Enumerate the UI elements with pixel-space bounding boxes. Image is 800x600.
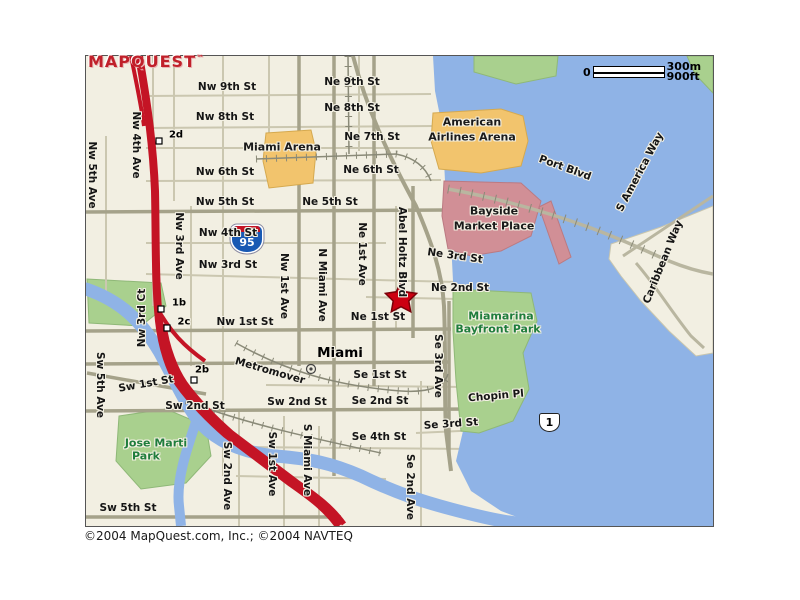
map-area[interactable]: 95 1 [85, 55, 714, 527]
map-scale: 0 300m 900ft [583, 62, 701, 82]
shield-red-band [234, 226, 260, 232]
scale-zero: 0 [583, 66, 591, 79]
interstate-95-shield: 95 [232, 226, 262, 252]
metromover-station-icon [307, 365, 316, 374]
map-canvas [86, 56, 713, 526]
us-1-shield: 1 [539, 413, 560, 432]
metromover-lines [186, 56, 448, 453]
map-screenshot: 95 1 Nw 9th StNe 9th StNw 8th StNe 8th S… [0, 0, 800, 600]
copyright-text: ©2004 MapQuest.com, Inc.; ©2004 NAVTEQ [84, 529, 353, 543]
mapquest-logo: MAPQUEST™ [88, 52, 204, 71]
american-airlines-arena-area [431, 109, 528, 173]
scale-bar [593, 66, 665, 78]
scale-imperial: 900ft [667, 72, 701, 82]
